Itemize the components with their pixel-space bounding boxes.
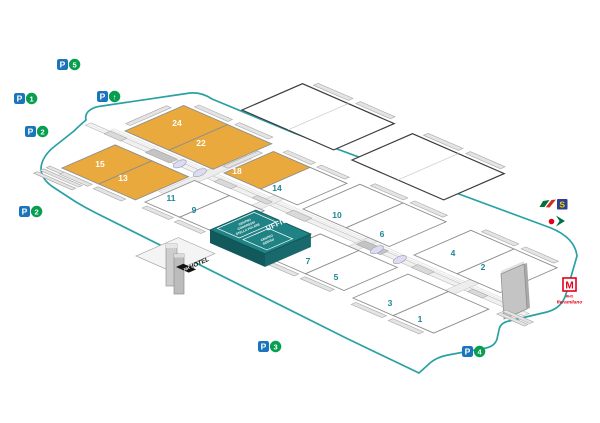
hall-13-label: 13 <box>118 173 128 183</box>
parking-number: 1 <box>30 94 34 103</box>
hall-14-label: 14 <box>272 183 282 193</box>
hall-4-label: 4 <box>451 248 456 258</box>
axis-service-building <box>104 131 127 141</box>
fs-railways-icon <box>540 200 557 208</box>
parking-badge-p4: P4 <box>462 346 485 357</box>
parking-letter: P <box>17 94 23 104</box>
hotel-tower-back-roof <box>166 244 177 248</box>
parking-letter: P <box>22 207 28 217</box>
axis-service-building <box>214 179 237 189</box>
hall-1-label: 1 <box>418 314 423 324</box>
parking-badge-p5: P5 <box>57 59 80 70</box>
hall-22-label: 22 <box>196 138 206 148</box>
metro-station-line1: RHO <box>566 295 574 299</box>
hall-15-label: 15 <box>95 159 105 169</box>
hall-18-label: 18 <box>232 166 242 176</box>
hall-9-label: 9 <box>192 205 197 215</box>
parking-number: 2 <box>41 127 45 136</box>
metro-station-line2: fieramilano <box>557 300 583 306</box>
hotel-tower-front <box>174 254 184 294</box>
hall-10-label: 10 <box>332 210 342 220</box>
parking-badge-p2-south: P2 <box>19 206 42 217</box>
parking-letter: P <box>100 92 106 102</box>
hall-6-label: 6 <box>380 229 385 239</box>
hall-11-label: 11 <box>167 193 176 203</box>
parking-badge-p2-west: P2 <box>25 126 48 137</box>
metro-symbol: M <box>565 281 573 292</box>
parking-number: 3 <box>274 342 278 351</box>
rail-links: S <box>540 199 568 227</box>
central-axis-walkway <box>85 123 529 316</box>
parking-badge-p-multi: P↑ <box>97 91 120 102</box>
parking-badge-p1: P1 <box>14 93 37 104</box>
hotel-tower-front-roof <box>174 254 184 258</box>
parking-letter: P <box>261 342 267 352</box>
hall-5-label: 5 <box>334 272 339 282</box>
venue-map-svg: 242218141064215131197531UFFICICENTROCONG… <box>0 0 600 423</box>
metro-station: MRHOfieramilano <box>557 278 583 306</box>
fieramilano-venue-map: 242218141064215131197531UFFICICENTROCONG… <box>0 0 600 423</box>
parking-letter: P <box>465 347 471 357</box>
hall-7-label: 7 <box>306 256 311 266</box>
parking-number: 2 <box>35 207 39 216</box>
parking-number: ↑ <box>113 92 117 101</box>
trenord-icon <box>549 216 565 227</box>
hall-3-label: 3 <box>388 298 393 308</box>
parking-badge-p3: P3 <box>258 341 281 352</box>
parking-letter: P <box>60 60 66 70</box>
suburban-line-letter: S <box>559 200 565 210</box>
hall-2-label: 2 <box>481 262 486 272</box>
parking-letter: P <box>28 127 34 137</box>
parking-number: 5 <box>73 60 77 69</box>
axis-service-building <box>411 265 434 275</box>
hall-24-label: 24 <box>172 118 182 128</box>
